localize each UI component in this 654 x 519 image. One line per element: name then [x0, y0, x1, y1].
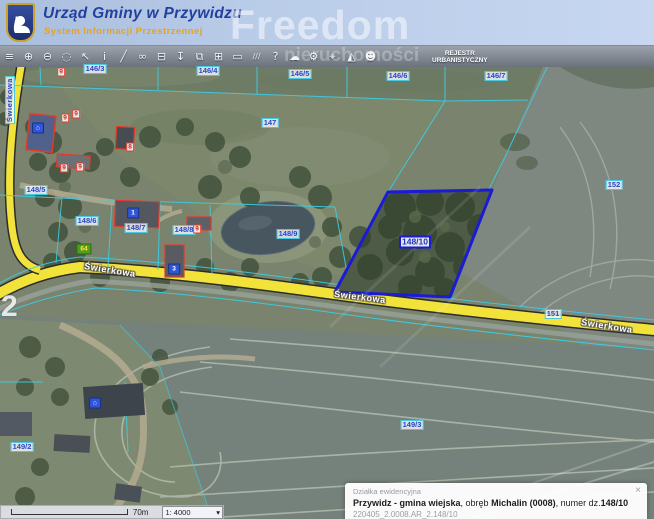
- map-viewport[interactable]: [0, 67, 654, 519]
- page-title: Urząd Gminy w Przywidzu: [43, 5, 242, 23]
- print-icon[interactable]: ⊟: [152, 47, 171, 67]
- scale-distance-label: 70m: [133, 508, 149, 517]
- layers-icon[interactable]: ≡: [0, 47, 19, 67]
- municipality-crest-logo: [6, 3, 35, 42]
- split-panels-icon[interactable]: ⊞: [209, 47, 228, 67]
- page-subtitle: System Informacji Przestrzennej: [44, 26, 203, 37]
- measure-icon[interactable]: ///: [247, 47, 266, 67]
- identify-info-icon[interactable]: i: [95, 47, 114, 67]
- select-shape-icon[interactable]: ◌: [57, 47, 76, 67]
- help-icon[interactable]: ?: [266, 47, 285, 67]
- dropdown-arrow-icon: ▾: [216, 508, 220, 517]
- close-icon[interactable]: ×: [635, 485, 641, 496]
- copy-window-icon[interactable]: ⧉: [190, 47, 209, 67]
- rejestr-urbanistyczny-button[interactable]: REJESTR URBANISTYCZNY: [426, 49, 494, 65]
- comment-bubble-icon[interactable]: ▭: [228, 47, 247, 67]
- parcel-info-panel: Działka ewidencyjna × Przywidz - gmina w…: [345, 483, 647, 519]
- download-pin-icon[interactable]: ↧: [171, 47, 190, 67]
- terrain-3d-icon[interactable]: ◭: [342, 47, 361, 67]
- municipality-name: Przywidz - gmina wiejska: [353, 498, 461, 508]
- settings-gears-icon[interactable]: ⚙: [304, 47, 323, 67]
- parcel-identifier-code: 220405_2.0008.AR_2.148/10: [353, 510, 639, 519]
- scale-ratio-select[interactable]: 1: 4000 ▾: [162, 506, 223, 519]
- toolbar-icons: ≡⊕⊖◌↖i╱∞⊟↧⧉⊞▭///?☁⚙⌖◭☻: [0, 46, 380, 68]
- pointer-icon[interactable]: ↖: [76, 47, 95, 67]
- zoom-in-icon[interactable]: ⊕: [19, 47, 38, 67]
- scale-bar: [11, 509, 128, 515]
- parcel-number: 148/10: [601, 498, 629, 508]
- map-toolbar: ≡⊕⊖◌↖i╱∞⊟↧⧉⊞▭///?☁⚙⌖◭☻ REJESTR URBANISTY…: [0, 45, 654, 67]
- parcel-description: Przywidz - gmina wiejska, obręb Michalin…: [353, 498, 639, 508]
- sep-text-2: , numer dz.: [556, 498, 601, 508]
- contact-person-icon[interactable]: ☻: [361, 47, 380, 67]
- cloud-upload-icon[interactable]: ☁: [285, 47, 304, 67]
- zoom-out-icon[interactable]: ⊖: [38, 47, 57, 67]
- register-label-line1: REJESTR: [445, 50, 475, 57]
- draw-line-icon[interactable]: ╱: [114, 47, 133, 67]
- scale-footer: 70m 1: 4000 ▾: [0, 505, 224, 519]
- scale-ratio-value: 1: 4000: [165, 508, 190, 517]
- link-icon[interactable]: ∞: [133, 47, 152, 67]
- swan-icon: [10, 11, 33, 37]
- register-label-line2: URBANISTYCZNY: [432, 57, 488, 64]
- sep-text-1: , obręb: [461, 498, 492, 508]
- info-panel-title: Działka ewidencyjna: [353, 487, 639, 496]
- district-name: Michalin (0008): [491, 498, 556, 508]
- search-locate-icon[interactable]: ⌖: [323, 47, 342, 67]
- header-bar: Urząd Gminy w Przywidzu System Informacj…: [0, 0, 654, 45]
- app-window: Urząd Gminy w Przywidzu System Informacj…: [0, 0, 654, 519]
